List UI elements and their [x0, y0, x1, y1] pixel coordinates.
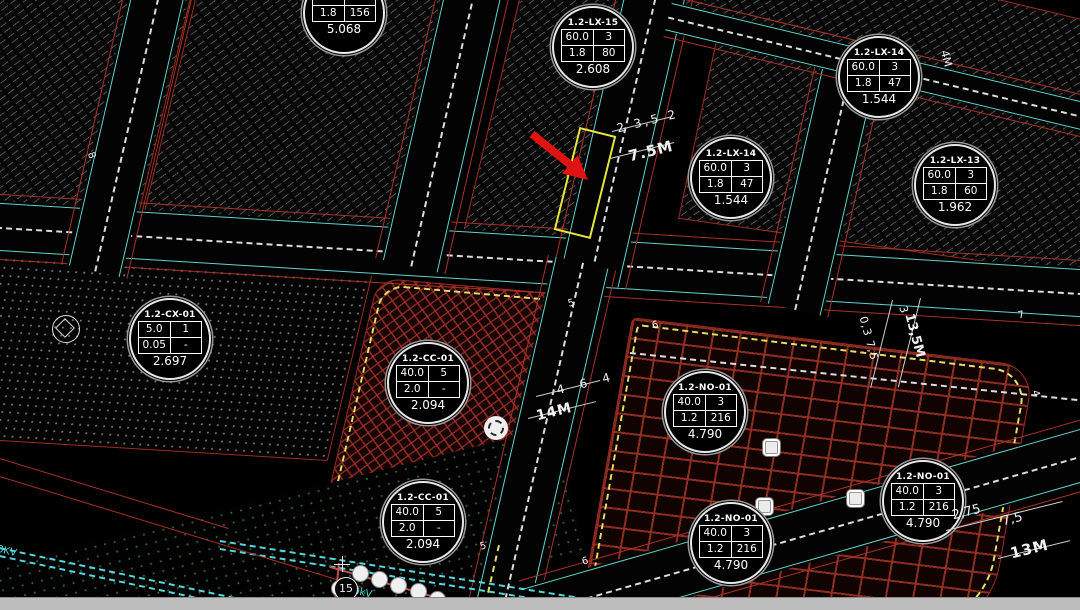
pointer-arrow-icon	[528, 130, 598, 190]
parcel-label-badge: 1.2-LX-14 60.03 1.847 1.544	[838, 36, 920, 118]
parcel-label-badge: 1.2-NO-01 40.03 1.2216 4.790	[882, 460, 964, 542]
cad-canvas[interactable]: 15 110KV 110kV 1.8156 5.068 1.2-LX-15 60…	[0, 0, 1080, 610]
parcel-label-badge: 1.2-CX-01 5.01 0.05- 2.697	[129, 298, 211, 380]
parcel-label-badge: 1.2-CC-01 40.05 2.0- 2.094	[382, 481, 464, 563]
utility-box-icon	[846, 489, 865, 508]
parcel-label-badge: 1.2-NO-01 40.03 1.2216 4.790	[690, 502, 772, 584]
parcel-label-badge: 1.2-LX-15 60.03 1.880 2.608	[552, 6, 634, 88]
survey-point-icon	[334, 556, 350, 572]
tree-symbol-icon	[484, 416, 508, 440]
utility-box-icon	[762, 438, 781, 457]
tree-circle	[390, 577, 407, 594]
parcel-label-badge: 1.2-LX-14 60.03 1.847 1.544	[690, 137, 772, 219]
window-bottom-bar	[0, 597, 1080, 610]
parcel-label-badge: 1.2-LX-13 60.03 1.860 1.962	[914, 144, 996, 226]
parcel-label-badge: 1.2-CC-01 40.05 2.0- 2.094	[387, 342, 469, 424]
tree-circle	[371, 571, 388, 588]
dimension-label: 7,5	[1000, 510, 1024, 530]
power-line-label: 110KV	[0, 541, 18, 559]
green-space-symbol-icon	[52, 315, 80, 343]
parcel-label-badge: 1.2-NO-01 40.03 1.2216 4.790	[664, 371, 746, 453]
dimension-label: 13M	[1008, 536, 1050, 563]
dimension-label: 6	[581, 555, 590, 567]
corridor-boundary	[0, 452, 229, 529]
tree-circle	[352, 565, 369, 582]
